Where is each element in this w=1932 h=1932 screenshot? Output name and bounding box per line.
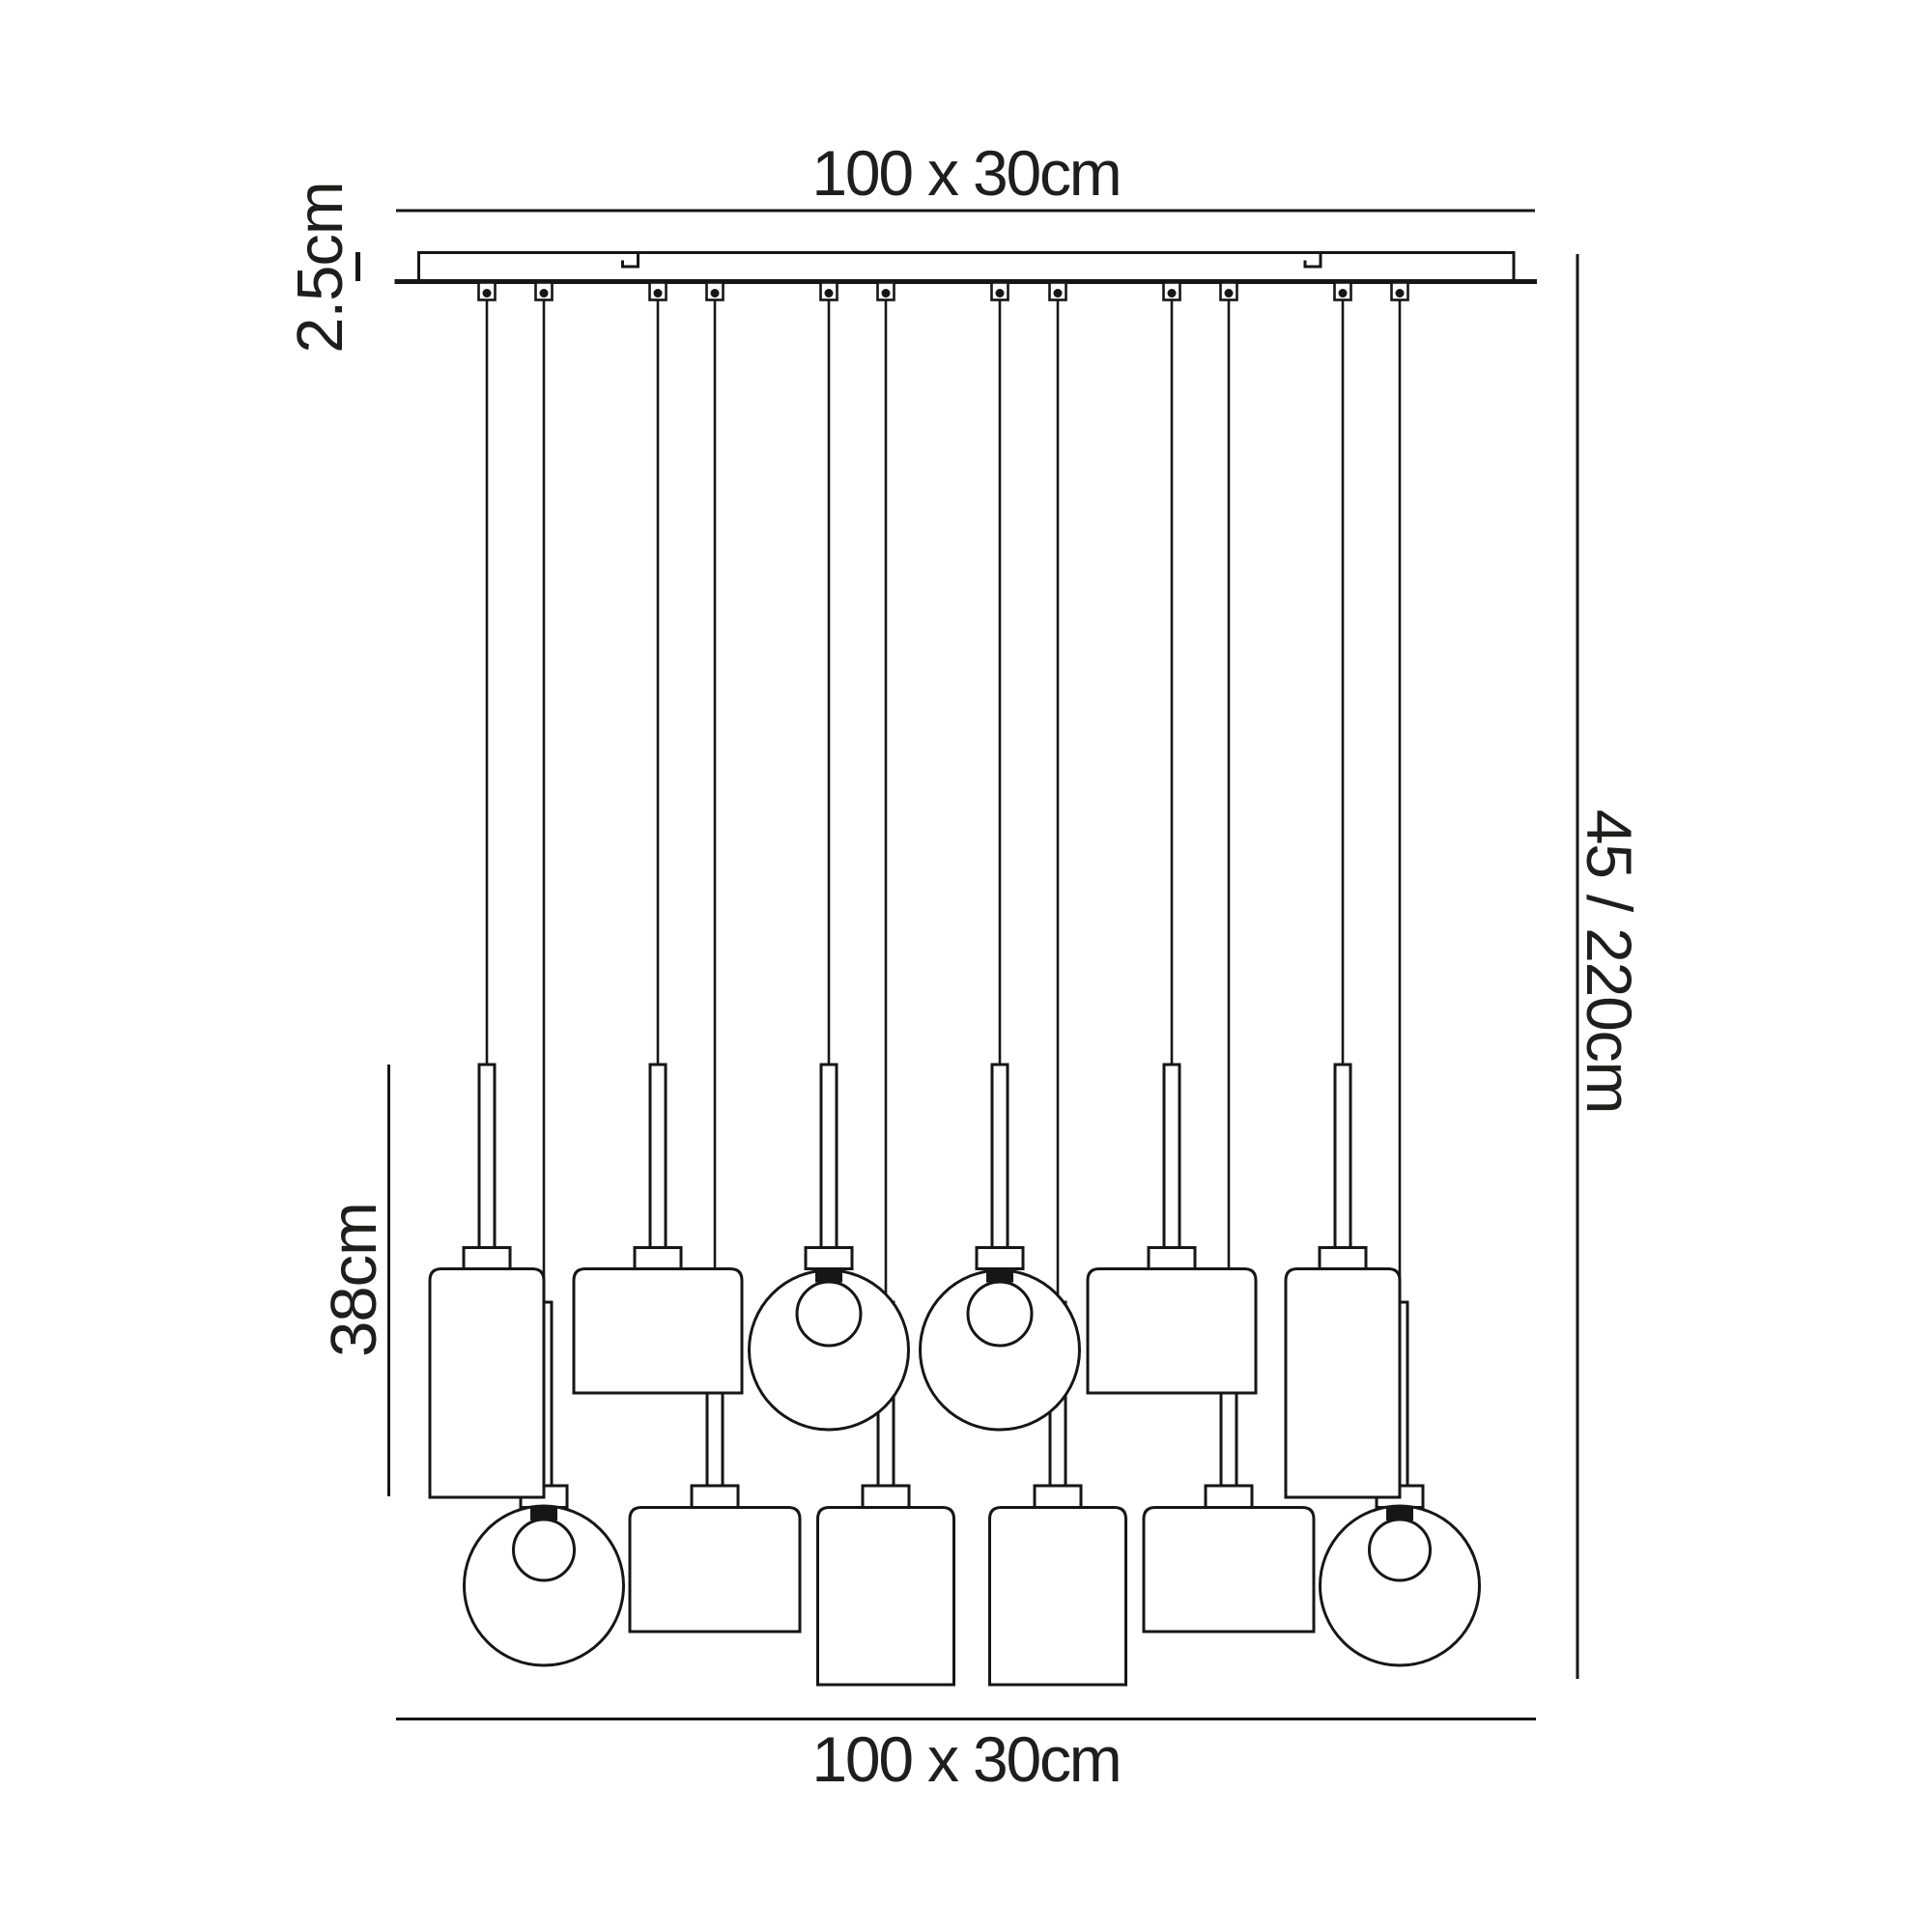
svg-text:38cm: 38cm [318, 1203, 390, 1357]
svg-text:100 x 30cm: 100 x 30cm [811, 137, 1120, 209]
svg-text:45 / 220cm: 45 / 220cm [1574, 810, 1645, 1114]
svg-text:100 x 30cm: 100 x 30cm [811, 1723, 1120, 1795]
svg-text:2.5cm: 2.5cm [284, 182, 356, 353]
